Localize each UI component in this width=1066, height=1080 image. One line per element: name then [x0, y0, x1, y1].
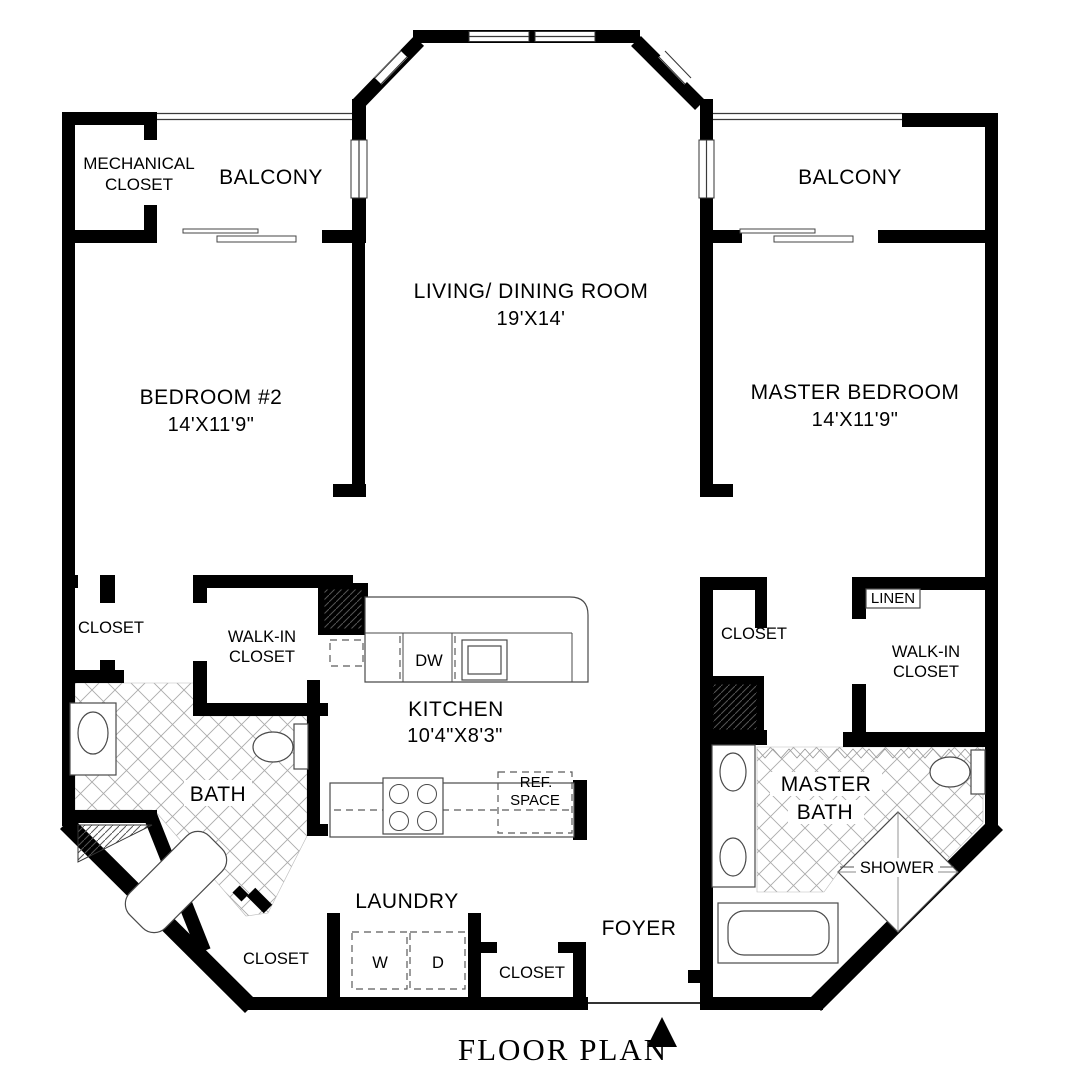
- label-kitchen: KITCHEN: [408, 698, 504, 721]
- label-ref-line1: REF.: [520, 774, 553, 791]
- master-tub: [728, 911, 829, 955]
- wall-closet-bm-stub: [481, 942, 497, 953]
- label-laundry: LAUNDRY: [355, 890, 458, 913]
- label-bedroom2-dims: 14'X11'9": [168, 414, 255, 436]
- label-walkin-left-line2: CLOSET: [229, 648, 295, 666]
- label-master-bedroom-dims: 14'X11'9": [812, 409, 899, 431]
- label-linen: LINEN: [871, 590, 915, 607]
- wall-closet-bm-right: [573, 942, 586, 1008]
- label-balcony-right: BALCONY: [798, 166, 902, 189]
- label-kitchen-dims: 10'4"X8'3": [407, 725, 503, 747]
- label-living-dining-dims: 19'X14': [497, 308, 566, 330]
- wall-laundry-left: [327, 913, 340, 1003]
- sliding-door-left-fixed: [183, 229, 258, 233]
- bath-sink-basin: [78, 712, 108, 754]
- label-closet-bottom-middle: CLOSET: [499, 964, 565, 982]
- wall-wic-right-bottom: [858, 732, 998, 747]
- wall-bottom-right-run: [700, 997, 823, 1010]
- wall-balcony-right-top: [902, 113, 998, 127]
- page-title: FLOOR PLAN: [458, 1032, 668, 1067]
- label-master-bath-line2: BATH: [797, 801, 853, 824]
- master-sink-1: [720, 753, 746, 791]
- label-mechanical-closet-line2: CLOSET: [105, 175, 173, 194]
- sliding-door-right-panel: [774, 236, 853, 242]
- wall-wic-right-stub-top: [852, 577, 866, 619]
- wall-bottom-left-run: [243, 997, 588, 1010]
- label-mechanical-closet-line1: MECHANICAL: [83, 154, 194, 173]
- label-dishwasher: DW: [415, 652, 443, 670]
- label-closet-bottom-left: CLOSET: [243, 950, 309, 968]
- bath-corner-shelf: [78, 825, 152, 862]
- label-master-closet: CLOSET: [721, 625, 787, 643]
- wall-mech-top: [62, 112, 157, 125]
- kitchen-corner-cabinet: [330, 640, 363, 666]
- page: { "title": "FLOOR PLAN", "rooms": { "mec…: [0, 0, 1066, 1080]
- wall-kitchen-counter-end: [573, 780, 587, 840]
- wall-right: [985, 113, 998, 826]
- label-foyer: FOYER: [602, 917, 677, 940]
- wall-master-west-foot: [700, 484, 733, 497]
- kitchen-range: [383, 778, 443, 834]
- wall-wic-right-lower: [852, 684, 866, 735]
- wall-balcony-right-bottom-a: [708, 230, 742, 243]
- wall-closet-bottom: [62, 670, 124, 683]
- bath-toilet-bowl: [253, 732, 293, 762]
- wall-walkin-left-stub: [193, 575, 207, 603]
- label-walkin-left-line1: WALK-IN: [228, 628, 296, 646]
- master-toilet-bowl: [930, 757, 970, 787]
- label-shower: SHOWER: [860, 859, 934, 877]
- wall-balcony-left-bottom-a: [62, 230, 157, 243]
- wall-master-closet-stub: [755, 590, 767, 628]
- wall-bath-southwest: [62, 810, 157, 823]
- label-bath: BATH: [190, 783, 246, 806]
- bath-toilet-tank: [294, 724, 308, 769]
- wall-master-bath-north-b: [843, 732, 863, 747]
- label-walkin-right-line2: CLOSET: [893, 663, 959, 681]
- wall-closet-stub-top: [100, 575, 115, 603]
- label-washer: W: [372, 954, 388, 972]
- wall-bay-diagonal-right: [636, 41, 700, 105]
- wall-mbr-south-a: [700, 577, 767, 590]
- shaft-left-hatch: [324, 589, 362, 629]
- label-bedroom2-closet: CLOSET: [78, 619, 144, 637]
- shaft-right-hatch: [713, 684, 757, 730]
- sliding-door-right-fixed: [740, 229, 815, 233]
- wall-closet-bl-door-stub2: [236, 889, 245, 898]
- label-master-bedroom: MASTER BEDROOM: [751, 381, 960, 404]
- wall-master-bath-north-a: [700, 730, 767, 745]
- floor-plan-drawing: MECHANICAL CLOSET BALCONY BALCONY LIVING…: [0, 0, 1066, 1080]
- wall-bed2-south-a: [62, 575, 78, 588]
- wall-bath-east-foot: [307, 824, 328, 836]
- label-living-dining: LIVING/ DINING ROOM: [414, 280, 649, 303]
- wall-mech-stub-top: [144, 112, 157, 140]
- wall-bedroom2-east: [352, 243, 365, 484]
- wall-foyer-stub: [688, 970, 702, 983]
- label-bedroom2: BEDROOM #2: [140, 386, 283, 409]
- wall-mbr-south-b: [852, 577, 998, 590]
- master-sink-2: [720, 838, 746, 876]
- wall-laundry-right: [468, 913, 481, 1003]
- sliding-door-left-panel: [217, 236, 296, 242]
- label-master-bath-line1: MASTER: [781, 773, 872, 796]
- wall-bath-east: [307, 680, 320, 836]
- master-toilet-tank: [971, 750, 985, 794]
- label-balcony-left: BALCONY: [219, 166, 323, 189]
- wall-bedroom2-east-foot: [333, 484, 366, 497]
- label-dryer: D: [432, 954, 444, 972]
- kitchen-sink-inner: [468, 646, 501, 674]
- wall-master-suite-west: [700, 577, 713, 1010]
- label-walkin-right-line1: WALK-IN: [892, 643, 960, 661]
- wall-master-west: [700, 243, 713, 484]
- wall-balcony-right-bottom-b: [878, 230, 998, 243]
- label-ref-line2: SPACE: [510, 792, 560, 809]
